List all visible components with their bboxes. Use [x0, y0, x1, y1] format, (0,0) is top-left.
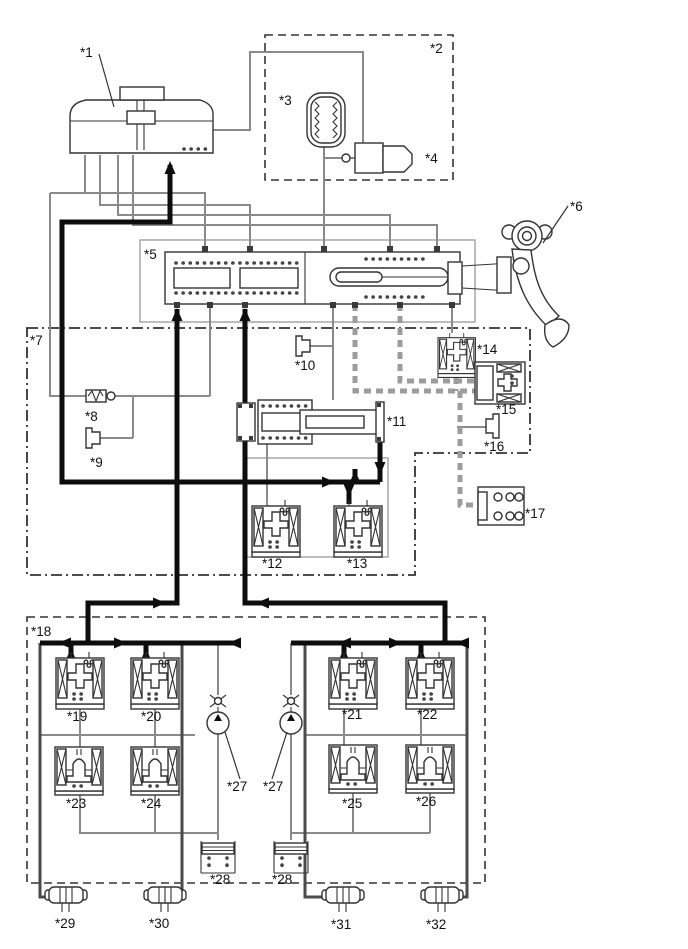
callout-label-28-right: *28 — [272, 872, 292, 887]
callout-label-29: *29 — [55, 916, 75, 931]
solenoid-valve-25 — [329, 745, 377, 793]
wheel-cylinder-30 — [144, 887, 186, 912]
callout-label-11: *11 — [387, 414, 406, 429]
reservoir-right — [274, 841, 308, 873]
callout-label-30: *30 — [149, 916, 169, 931]
callout-label-19: *19 — [67, 709, 87, 724]
diagram-canvas: *1*2*3*4*5*6*7*8*9*10*11*12*13*14*15*16*… — [0, 0, 688, 949]
callout-label-7: *7 — [30, 333, 43, 348]
callout-label-8: *8 — [85, 409, 98, 424]
solenoid-valve-22 — [406, 652, 454, 709]
regulator — [237, 400, 384, 444]
brake-hydraulic-diagram: *1*2*3*4*5*6*7*8*9*10*11*12*13*14*15*16*… — [0, 0, 688, 949]
callout-label-26: *26 — [416, 794, 436, 809]
callout-label-18: *18 — [31, 624, 51, 639]
pressure-sensor-9 — [86, 428, 100, 448]
master-cylinder — [165, 246, 511, 308]
brake-fluid-reservoir — [70, 87, 213, 153]
callout-label-5: *5 — [144, 247, 157, 262]
striped-pressure-lines — [355, 304, 478, 505]
callout-label-25: *25 — [342, 796, 362, 811]
solenoid-valve-24 — [131, 747, 179, 795]
solenoid-valve-21 — [329, 652, 377, 709]
callout-label-17: *17 — [525, 506, 545, 521]
pump-left — [207, 695, 229, 734]
wheel-cylinder-29 — [45, 887, 87, 912]
callout-label-1: *1 — [80, 45, 93, 60]
callout-label-24: *24 — [141, 796, 162, 811]
solenoid-valve-26 — [406, 745, 454, 793]
pressure-sensor-10 — [296, 336, 310, 356]
solenoid-valve-23 — [55, 747, 103, 795]
callout-label-14: *14 — [477, 342, 498, 357]
stroke-simulator — [478, 487, 524, 525]
callout-label-16: *16 — [484, 439, 504, 454]
reservoir-left — [201, 841, 235, 873]
solenoid-valve-19 — [56, 652, 104, 709]
callout-label-13: *13 — [347, 556, 367, 571]
callout-label-9: *9 — [90, 455, 103, 470]
solenoid-valve-13 — [334, 500, 382, 557]
callout-label-27-right: *27 — [263, 779, 283, 794]
callout-label-12: *12 — [262, 556, 282, 571]
callout-label-28-left: *28 — [210, 872, 230, 887]
callout-label-20: *20 — [141, 709, 161, 724]
pump-right — [280, 695, 302, 734]
pressure-sensor-16 — [486, 414, 499, 438]
callout-label-2: *2 — [430, 41, 443, 56]
callout-label-6: *6 — [570, 199, 583, 214]
solenoid-valve-14 — [438, 333, 475, 377]
callout-label-10: *10 — [295, 358, 315, 373]
solenoid-valve-12 — [252, 500, 300, 557]
wheel-cylinder-32 — [421, 887, 463, 912]
callout-label-3: *3 — [279, 93, 292, 108]
callout-label-21: *21 — [342, 707, 362, 722]
callout-label-15: *15 — [496, 402, 516, 417]
solenoid-valve-20 — [131, 652, 179, 709]
callout-label-22: *22 — [417, 707, 437, 722]
relief-valve — [86, 390, 115, 402]
accumulator — [307, 93, 345, 147]
callout-label-32: *32 — [426, 917, 446, 932]
wheel-cylinder-31 — [322, 887, 364, 912]
callout-label-31: *31 — [331, 917, 351, 932]
solenoid-valve-15 — [475, 362, 525, 404]
callout-label-4: *4 — [425, 151, 438, 166]
callout-label-23: *23 — [66, 796, 86, 811]
callout-label-27-left: *27 — [227, 779, 247, 794]
